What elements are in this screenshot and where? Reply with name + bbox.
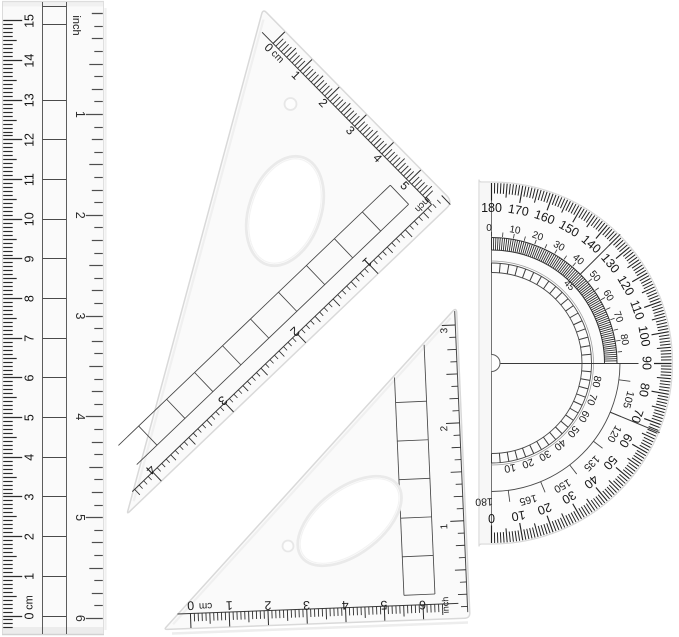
svg-text:1: 1 bbox=[225, 598, 233, 612]
svg-text:10: 10 bbox=[503, 461, 517, 475]
svg-text:14: 14 bbox=[23, 54, 37, 68]
svg-text:4: 4 bbox=[341, 598, 349, 612]
svg-text:15: 15 bbox=[23, 14, 37, 28]
svg-text:6: 6 bbox=[73, 615, 87, 622]
svg-text:12: 12 bbox=[23, 133, 37, 147]
svg-text:13: 13 bbox=[23, 93, 37, 107]
svg-text:80: 80 bbox=[589, 375, 603, 389]
svg-text:2: 2 bbox=[73, 212, 87, 219]
svg-text:180: 180 bbox=[481, 201, 502, 215]
svg-text:80: 80 bbox=[636, 382, 652, 398]
svg-text:90: 90 bbox=[640, 356, 654, 370]
svg-text:5: 5 bbox=[73, 514, 87, 521]
svg-text:10: 10 bbox=[23, 212, 37, 226]
svg-text:3: 3 bbox=[73, 313, 87, 320]
svg-text:180: 180 bbox=[475, 495, 493, 508]
svg-text:2: 2 bbox=[23, 533, 37, 540]
svg-text:4: 4 bbox=[23, 454, 37, 461]
svg-text:2: 2 bbox=[439, 425, 450, 431]
svg-text:6: 6 bbox=[419, 598, 427, 612]
svg-text:5: 5 bbox=[23, 414, 37, 421]
svg-text:9: 9 bbox=[23, 255, 37, 262]
svg-text:4: 4 bbox=[73, 413, 87, 420]
svg-text:7: 7 bbox=[23, 335, 37, 342]
svg-text:inch: inch bbox=[440, 597, 451, 614]
svg-text:2: 2 bbox=[264, 598, 272, 612]
svg-text:3: 3 bbox=[303, 598, 311, 612]
svg-text:3: 3 bbox=[23, 493, 37, 500]
svg-text:11: 11 bbox=[23, 173, 37, 186]
svg-text:1: 1 bbox=[73, 111, 87, 118]
svg-text:cm: cm bbox=[24, 595, 36, 610]
svg-text:0: 0 bbox=[488, 511, 495, 525]
svg-text:1: 1 bbox=[439, 523, 450, 529]
svg-text:0: 0 bbox=[23, 612, 37, 619]
svg-text:cm: cm bbox=[199, 600, 213, 611]
svg-text:3: 3 bbox=[439, 327, 450, 333]
svg-text:8: 8 bbox=[23, 295, 37, 302]
svg-text:10: 10 bbox=[510, 508, 526, 524]
svg-text:5: 5 bbox=[380, 598, 388, 612]
svg-text:1: 1 bbox=[23, 573, 37, 580]
svg-text:inch: inch bbox=[70, 15, 82, 35]
svg-text:0: 0 bbox=[187, 598, 195, 612]
svg-text:6: 6 bbox=[23, 374, 37, 381]
